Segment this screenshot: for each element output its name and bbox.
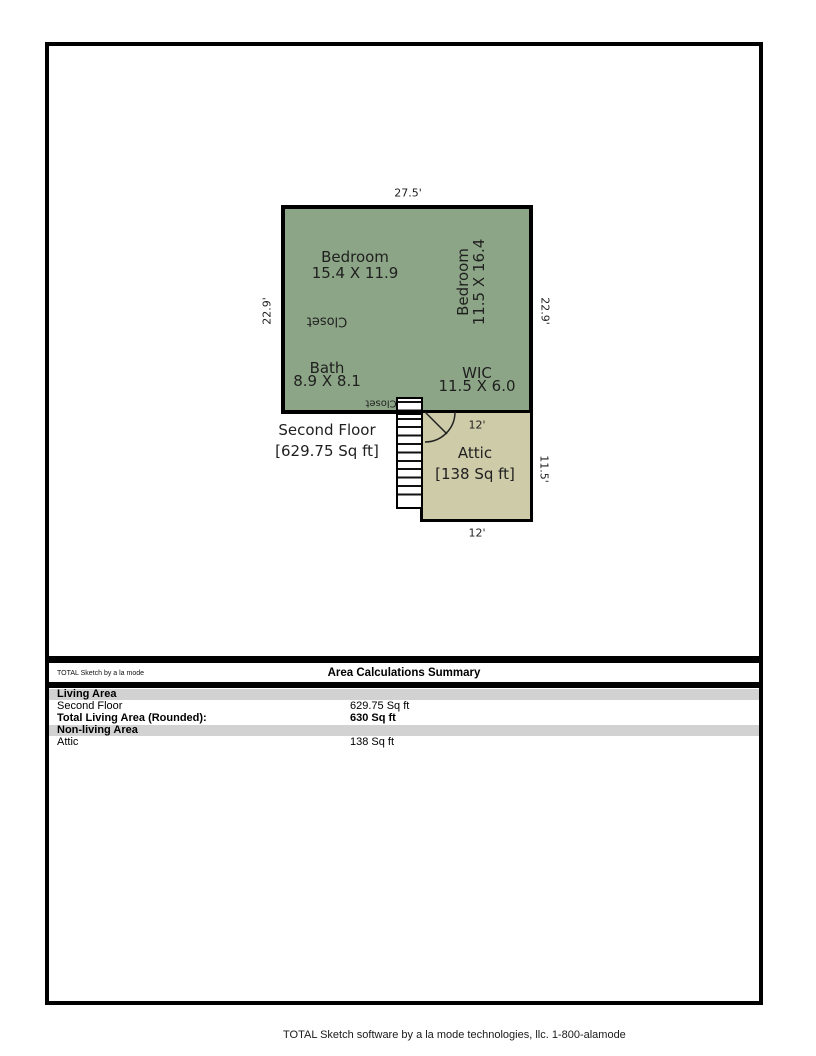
summary-header-rule <box>45 682 763 688</box>
room-size: 15.4 X 11.9 <box>312 265 399 281</box>
room-size: 11.5 X 16.4 <box>471 239 487 326</box>
row-label: Second Floor <box>57 700 122 712</box>
row-value: 630 Sq ft <box>350 713 396 724</box>
room-name: Bedroom <box>455 239 471 326</box>
row-label: Attic <box>57 736 78 748</box>
room-label-wic: WIC 11.5 X 6.0 <box>438 367 515 393</box>
attic-area-label: Attic [138 Sq ft] <box>435 443 515 485</box>
summary-top-rule <box>45 656 763 663</box>
table-row: Second Floor 629.75 Sq ft <box>49 701 759 712</box>
room-size: 11.5 X 6.0 <box>438 380 515 393</box>
table-row-total: Total Living Area (Rounded): 630 Sq ft <box>49 713 759 724</box>
floor-name: Second Floor <box>275 420 379 441</box>
room-label-bath: Bath 8.9 X 8.1 <box>293 362 361 388</box>
section-header-living-area: Living Area <box>49 689 759 700</box>
room-label-closet-1: Closet <box>307 314 348 329</box>
floor-area: [629.75 Sq ft] <box>275 441 379 462</box>
dim-attic-bottom: 12' <box>468 527 485 540</box>
second-floor-area-label: Second Floor [629.75 Sq ft] <box>275 420 379 462</box>
room-name: Attic <box>435 443 515 464</box>
row-value: 629.75 Sq ft <box>350 701 409 712</box>
room-label-closet-2: Closet <box>365 398 396 409</box>
dim-second-floor-left: 22.9' <box>261 297 274 325</box>
room-area: [138 Sq ft] <box>435 464 515 485</box>
dim-second-floor-top: 27.5' <box>394 187 422 200</box>
room-name: Bedroom <box>312 249 399 265</box>
dim-attic-right: 11.5' <box>538 455 551 483</box>
room-size: 8.9 X 8.1 <box>293 375 361 388</box>
dim-second-floor-right: 22.9' <box>539 297 552 325</box>
row-label: Total Living Area (Rounded): <box>57 712 207 724</box>
table-row: Attic 138 Sq ft <box>49 737 759 748</box>
room-label-bedroom-1: Bedroom 15.4 X 11.9 <box>312 249 399 281</box>
section-header-non-living-area: Non-living Area <box>49 725 759 736</box>
row-value: 138 Sq ft <box>350 737 394 748</box>
summary-title: Area Calculations Summary <box>45 667 763 679</box>
dim-attic-top: 12' <box>468 419 485 432</box>
page-footer: TOTAL Sketch software by a la mode techn… <box>283 1029 626 1041</box>
room-label-bedroom-2: Bedroom 11.5 X 16.4 <box>455 239 487 326</box>
